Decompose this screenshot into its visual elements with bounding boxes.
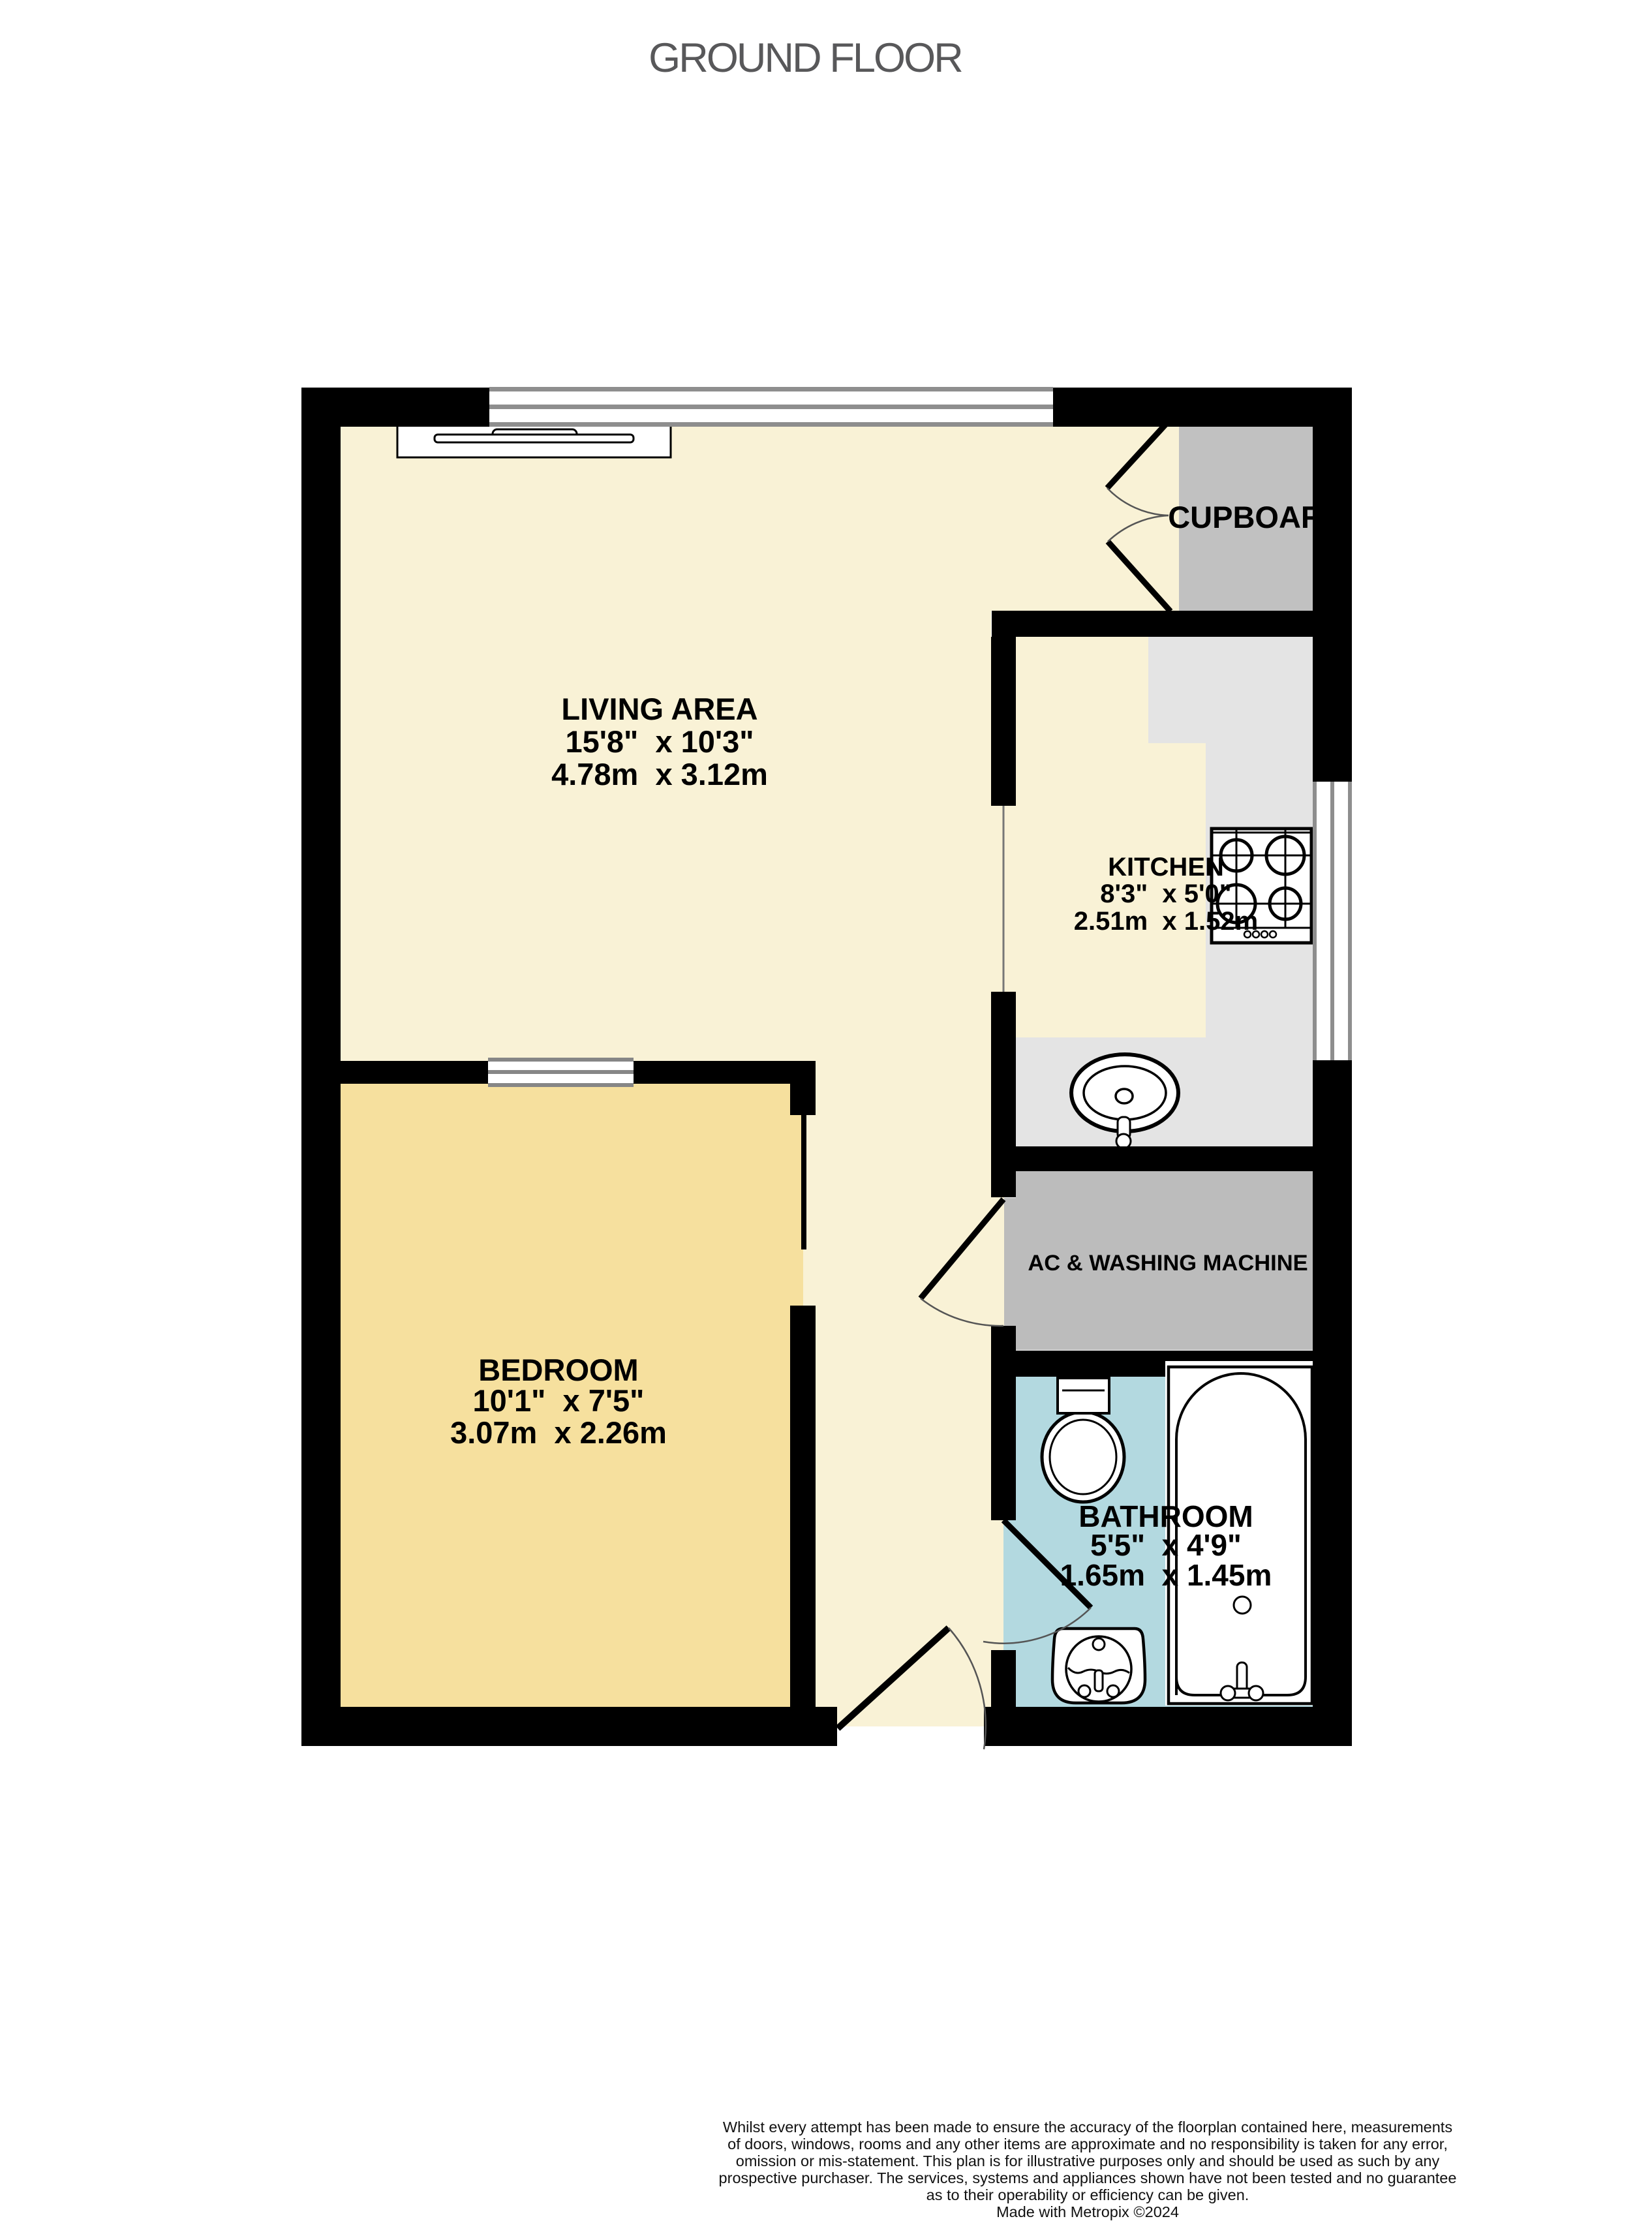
svg-text:BEDROOM: BEDROOM	[478, 1353, 638, 1387]
svg-text:Made with Metropix ©2024: Made with Metropix ©2024	[996, 2203, 1179, 2220]
svg-text:2.51m x 1.52m: 2.51m x 1.52m	[1074, 907, 1258, 936]
svg-text:1.65m x 1.45m: 1.65m x 1.45m	[1060, 1558, 1272, 1592]
svg-text:of doors, windows, rooms and a: of doors, windows, rooms and any other i…	[727, 2136, 1448, 2152]
svg-text:as to their operability or eff: as to their operability or efficiency ca…	[926, 2186, 1249, 2203]
svg-text:5'5" x 4'9": 5'5" x 4'9"	[1090, 1528, 1242, 1562]
svg-text:8'3" x 5'0": 8'3" x 5'0"	[1100, 880, 1232, 908]
svg-text:KITCHEN: KITCHEN	[1108, 853, 1224, 881]
svg-text:prospective purchaser. The ser: prospective purchaser. The services, sys…	[719, 2169, 1457, 2186]
svg-text:GROUND FLOOR: GROUND FLOOR	[649, 35, 962, 81]
svg-text:omission or mis-statement. Thi: omission or mis-statement. This plan is …	[736, 2152, 1440, 2169]
svg-text:3.07m x 2.26m: 3.07m x 2.26m	[450, 1415, 667, 1450]
svg-text:Whilst every attempt has been: Whilst every attempt has been made to en…	[723, 2119, 1452, 2136]
svg-text:10'1" x 7'5": 10'1" x 7'5"	[473, 1383, 645, 1418]
svg-text:15'8" x 10'3": 15'8" x 10'3"	[565, 724, 754, 759]
svg-text:AC & WASHING MACHINE: AC & WASHING MACHINE	[1028, 1251, 1308, 1276]
svg-text:4.78m x 3.12m: 4.78m x 3.12m	[551, 757, 768, 791]
svg-text:LIVING AREA: LIVING AREA	[561, 692, 757, 726]
